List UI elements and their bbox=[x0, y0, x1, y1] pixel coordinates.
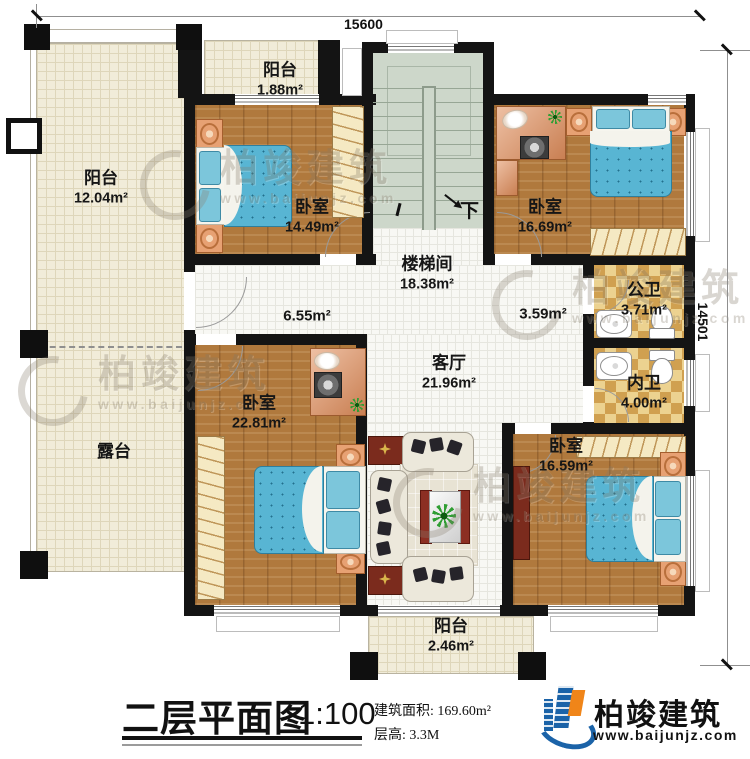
window-sill bbox=[216, 616, 340, 632]
stair-rail bbox=[422, 86, 436, 230]
door-opening bbox=[583, 386, 594, 422]
wall bbox=[318, 40, 340, 100]
balcony-sliding-door bbox=[378, 605, 500, 616]
drain-symbol bbox=[6, 118, 42, 154]
title-underline-2 bbox=[122, 744, 362, 746]
plant-icon bbox=[350, 398, 364, 412]
door-opening bbox=[583, 278, 594, 314]
computer bbox=[520, 136, 549, 159]
room-label-bedroom-tr: 卧室 16.69m² bbox=[518, 197, 572, 238]
room-label-bedroom-br: 卧室 16.59m² bbox=[539, 436, 593, 477]
window bbox=[684, 360, 695, 406]
dimension-height: 14501 bbox=[695, 303, 711, 342]
room-label-stairwell: 楼梯间 18.38m² bbox=[400, 254, 454, 295]
nightstand bbox=[566, 108, 592, 136]
logo-swoosh bbox=[533, 702, 602, 757]
build-area-text: 建筑面积: 169.60m² bbox=[374, 700, 491, 720]
bed-sheet-fold bbox=[590, 131, 670, 147]
window-sill bbox=[550, 616, 658, 632]
window-sill bbox=[342, 48, 362, 96]
room-label-bedroom-tl: 卧室 14.49m² bbox=[285, 197, 339, 238]
extension-line bbox=[700, 665, 750, 666]
computer bbox=[314, 372, 342, 398]
plan-title: 二层平面图 bbox=[122, 688, 312, 742]
room-label-bath-private: 内卫 4.00m² bbox=[621, 373, 667, 414]
nightstand bbox=[196, 224, 223, 253]
room-label-living: 客厅 21.96m² bbox=[422, 353, 476, 394]
tv-cabinet bbox=[513, 466, 530, 560]
wall bbox=[502, 423, 513, 616]
bed-pillow bbox=[655, 519, 681, 555]
wardrobe bbox=[197, 436, 225, 600]
desk-lamp bbox=[314, 352, 340, 370]
column bbox=[350, 652, 378, 680]
column bbox=[518, 652, 546, 680]
sofa-pillow bbox=[449, 566, 464, 581]
room-label-balcony-top: 阳台 1.88m² bbox=[257, 60, 303, 101]
title-underline bbox=[122, 736, 362, 740]
toilet-tank bbox=[649, 328, 675, 339]
column bbox=[20, 330, 48, 358]
bed-pillow bbox=[199, 151, 221, 185]
bed-pillow bbox=[596, 109, 630, 129]
door-opening bbox=[196, 334, 236, 345]
brand-logo-icon bbox=[540, 686, 590, 746]
room-label-terrace: 露台 bbox=[97, 441, 131, 463]
window bbox=[548, 605, 658, 616]
room-label-hall-bath: 3.59m² bbox=[519, 304, 567, 324]
bed-pillow bbox=[326, 511, 360, 549]
column bbox=[20, 551, 48, 579]
railing-line-1 bbox=[50, 29, 178, 30]
wall bbox=[583, 338, 695, 348]
floor-height-text: 层高: 3.3M bbox=[374, 724, 439, 744]
wall bbox=[184, 94, 195, 616]
column bbox=[24, 24, 50, 50]
sofa-pillow bbox=[429, 437, 444, 452]
dimension-width: 15600 bbox=[344, 16, 383, 32]
extension-line bbox=[700, 50, 750, 51]
terrace-divider-line bbox=[40, 346, 182, 348]
plan-scale: 1:100 bbox=[298, 696, 376, 732]
sofa-pillow bbox=[376, 541, 391, 556]
window-sill bbox=[695, 128, 710, 242]
door-opening bbox=[184, 272, 195, 330]
floor-plan-page: 下 bbox=[0, 0, 750, 759]
window-sill bbox=[695, 470, 710, 592]
room-label-hall: 6.55m² bbox=[283, 306, 331, 326]
brand-url: www.baijunjz.com bbox=[593, 727, 738, 743]
window bbox=[684, 132, 695, 236]
wall bbox=[483, 42, 494, 265]
nightstand bbox=[196, 119, 223, 149]
sofa-pillow bbox=[431, 569, 446, 584]
wardrobe bbox=[590, 228, 686, 256]
bed-pillow bbox=[199, 188, 221, 222]
window bbox=[648, 94, 686, 105]
plant-icon bbox=[432, 504, 456, 528]
window-sill bbox=[695, 354, 710, 412]
sofa-pillow bbox=[377, 521, 392, 536]
sofa-pillow bbox=[377, 477, 392, 492]
bed-pillow bbox=[632, 109, 666, 129]
room-label-balcony-left: 阳台 12.04m² bbox=[74, 168, 128, 209]
room-label-bath-public: 公卫 3.71m² bbox=[621, 280, 667, 321]
window-sill bbox=[386, 30, 458, 44]
column bbox=[176, 24, 202, 50]
bed-pillow bbox=[655, 481, 681, 517]
stairs-down-label: 下 bbox=[460, 196, 479, 223]
railing-line-2 bbox=[50, 42, 178, 43]
dimension-line-right bbox=[727, 50, 728, 666]
room-label-bedroom-bl: 卧室 22.81m² bbox=[232, 393, 286, 434]
floor-balcony-left-terrace bbox=[36, 43, 186, 572]
window bbox=[214, 605, 340, 616]
bed-pillow bbox=[326, 471, 360, 509]
desk-return bbox=[496, 160, 518, 196]
nightstand bbox=[660, 558, 686, 586]
door-opening bbox=[515, 423, 551, 434]
plant-icon bbox=[548, 110, 562, 124]
room-label-balcony-bottom: 阳台 2.46m² bbox=[428, 616, 474, 657]
